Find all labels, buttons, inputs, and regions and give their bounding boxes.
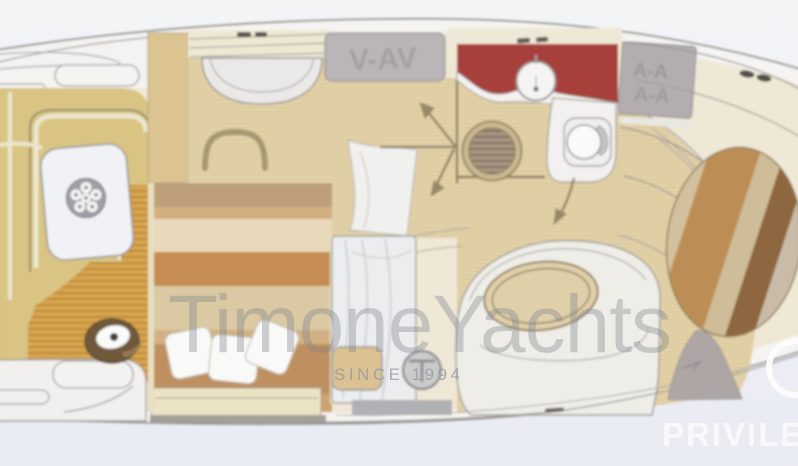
svg-text:PRIVILE: PRIVILE xyxy=(662,416,798,453)
svg-text:TimoneYachts: TimoneYachts xyxy=(168,279,671,370)
svg-text:SINCE 1994: SINCE 1994 xyxy=(334,365,464,384)
